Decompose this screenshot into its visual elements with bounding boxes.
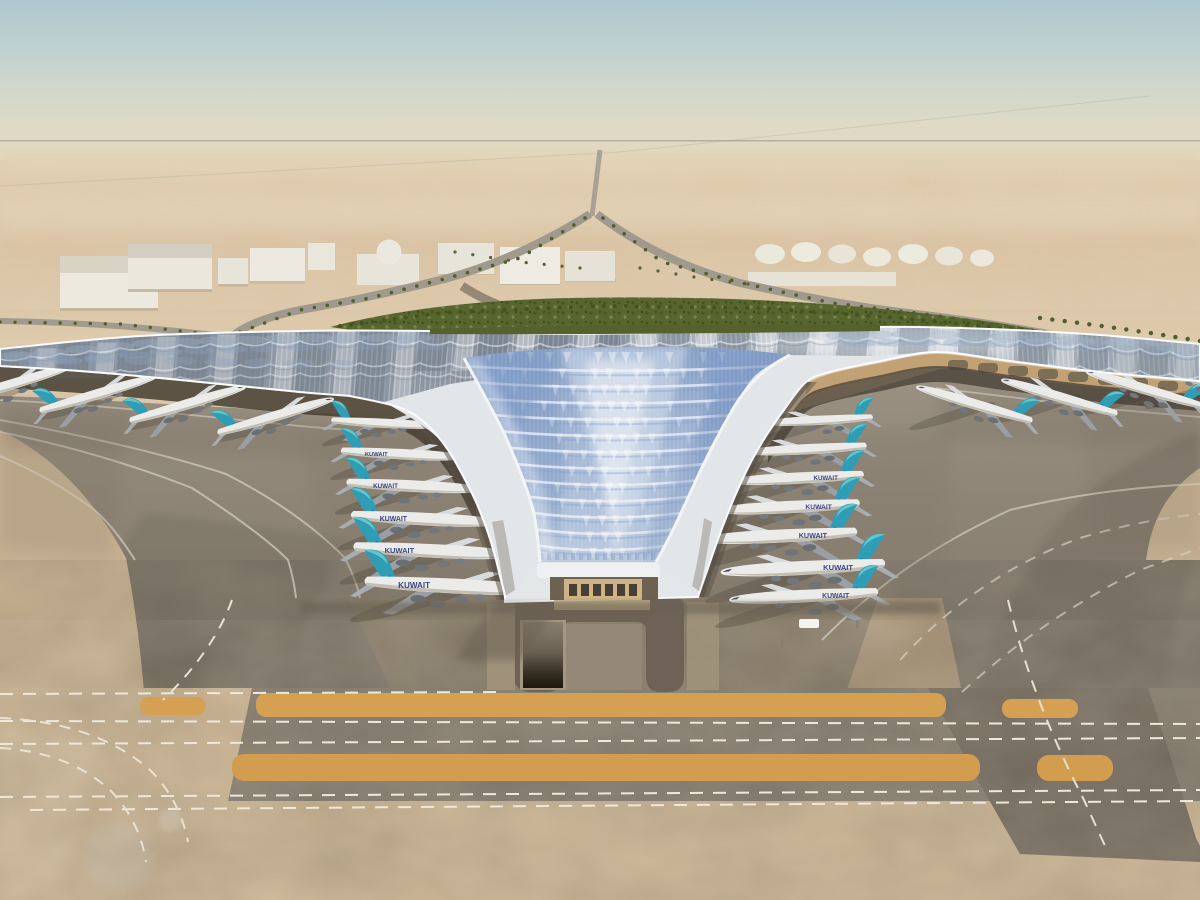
svg-text:KUWAIT: KUWAIT bbox=[823, 563, 853, 572]
svg-text:KUWAIT: KUWAIT bbox=[385, 546, 415, 555]
svg-text:KUWAIT: KUWAIT bbox=[398, 581, 430, 590]
svg-text:KUWAIT: KUWAIT bbox=[380, 516, 408, 523]
svg-text:KUWAIT: KUWAIT bbox=[799, 531, 828, 540]
svg-text:KUWAIT: KUWAIT bbox=[365, 452, 388, 458]
svg-text:KUWAIT: KUWAIT bbox=[805, 504, 832, 511]
svg-text:KUWAIT: KUWAIT bbox=[813, 475, 838, 482]
svg-text:KUWAIT: KUWAIT bbox=[822, 593, 850, 600]
svg-text:KUWAIT: KUWAIT bbox=[373, 483, 398, 490]
